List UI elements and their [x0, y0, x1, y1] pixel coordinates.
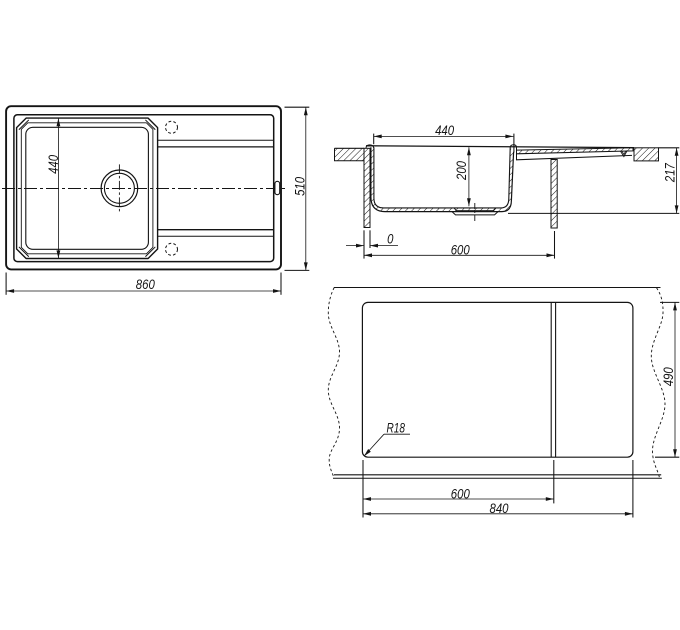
- svg-text:440: 440: [45, 155, 61, 174]
- svg-text:440: 440: [435, 122, 454, 138]
- svg-text:840: 840: [490, 500, 509, 516]
- svg-text:860: 860: [136, 276, 155, 292]
- svg-text:600: 600: [451, 485, 470, 501]
- svg-text:510: 510: [291, 177, 307, 196]
- svg-text:217: 217: [662, 162, 678, 183]
- svg-text:490: 490: [660, 367, 676, 386]
- svg-text:0: 0: [387, 231, 393, 247]
- svg-text:600: 600: [451, 242, 470, 258]
- svg-text:R18: R18: [386, 420, 405, 436]
- svg-text:200: 200: [453, 161, 469, 181]
